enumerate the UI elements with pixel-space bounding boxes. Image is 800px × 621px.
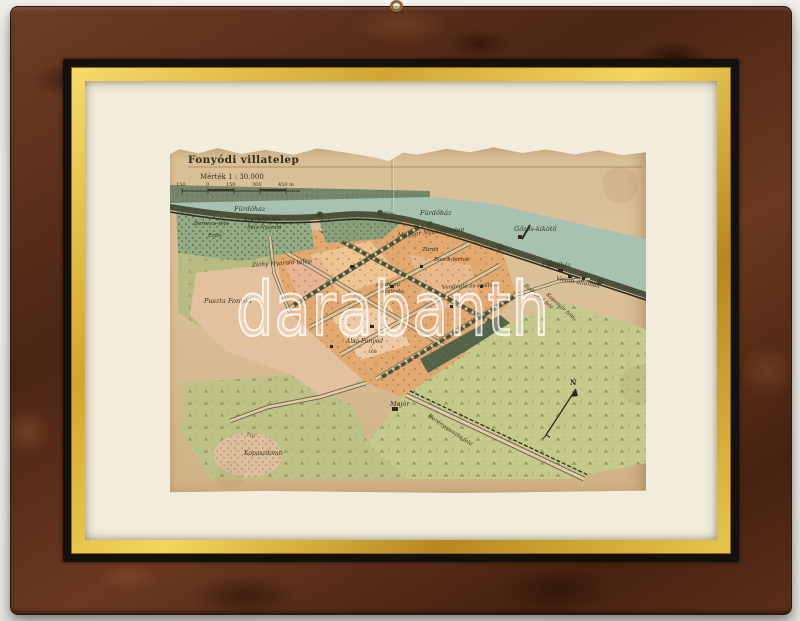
- map-label: Fürdőház: [541, 262, 572, 269]
- map-label: Fürdőház: [419, 208, 452, 217]
- photograph: Fonyódi villatelepMérték 1 : 30.00015001…: [0, 0, 800, 621]
- map-label: Fürdőház: [233, 204, 266, 213]
- map-label: 160: [368, 349, 377, 355]
- hanging-ring: [390, 0, 403, 12]
- map-label: Szunyogh-féle: [244, 216, 281, 223]
- map-sheet: Fonyódi villatelepMérték 1 : 30.00015001…: [170, 145, 646, 493]
- map-label: Béla Nyaraló: [246, 224, 281, 231]
- map-label: Zárda: [421, 246, 439, 253]
- map-label: 150: [176, 182, 186, 188]
- map-label: 300: [252, 182, 262, 188]
- map-label: 150: [226, 182, 236, 188]
- map-label: Basch-birtok: [433, 257, 470, 263]
- map-label: vendéglő: [376, 281, 401, 288]
- map-label: Fonyódi villatelep: [188, 154, 299, 166]
- map-label: 0: [206, 182, 209, 188]
- map-label: 450 m: [278, 182, 294, 188]
- map-label: Gőzös-kikötő: [514, 224, 557, 233]
- map-label: Berencs-féle: [193, 220, 230, 227]
- map-label: Major: [389, 400, 410, 408]
- map-label: Erdő: [207, 232, 222, 239]
- map-label: N: [570, 378, 577, 387]
- map-drawing: Fonyódi villatelepMérték 1 : 30.00015001…: [170, 145, 646, 493]
- map-label: Puszta Fonyód: [203, 297, 252, 305]
- map-label: Kopaszdomb: [243, 450, 283, 457]
- map-label: Alsó-Fonyód: [345, 338, 383, 345]
- map-label: szálloda: [382, 288, 403, 295]
- map-label: Mérték 1 : 30.000: [200, 173, 264, 181]
